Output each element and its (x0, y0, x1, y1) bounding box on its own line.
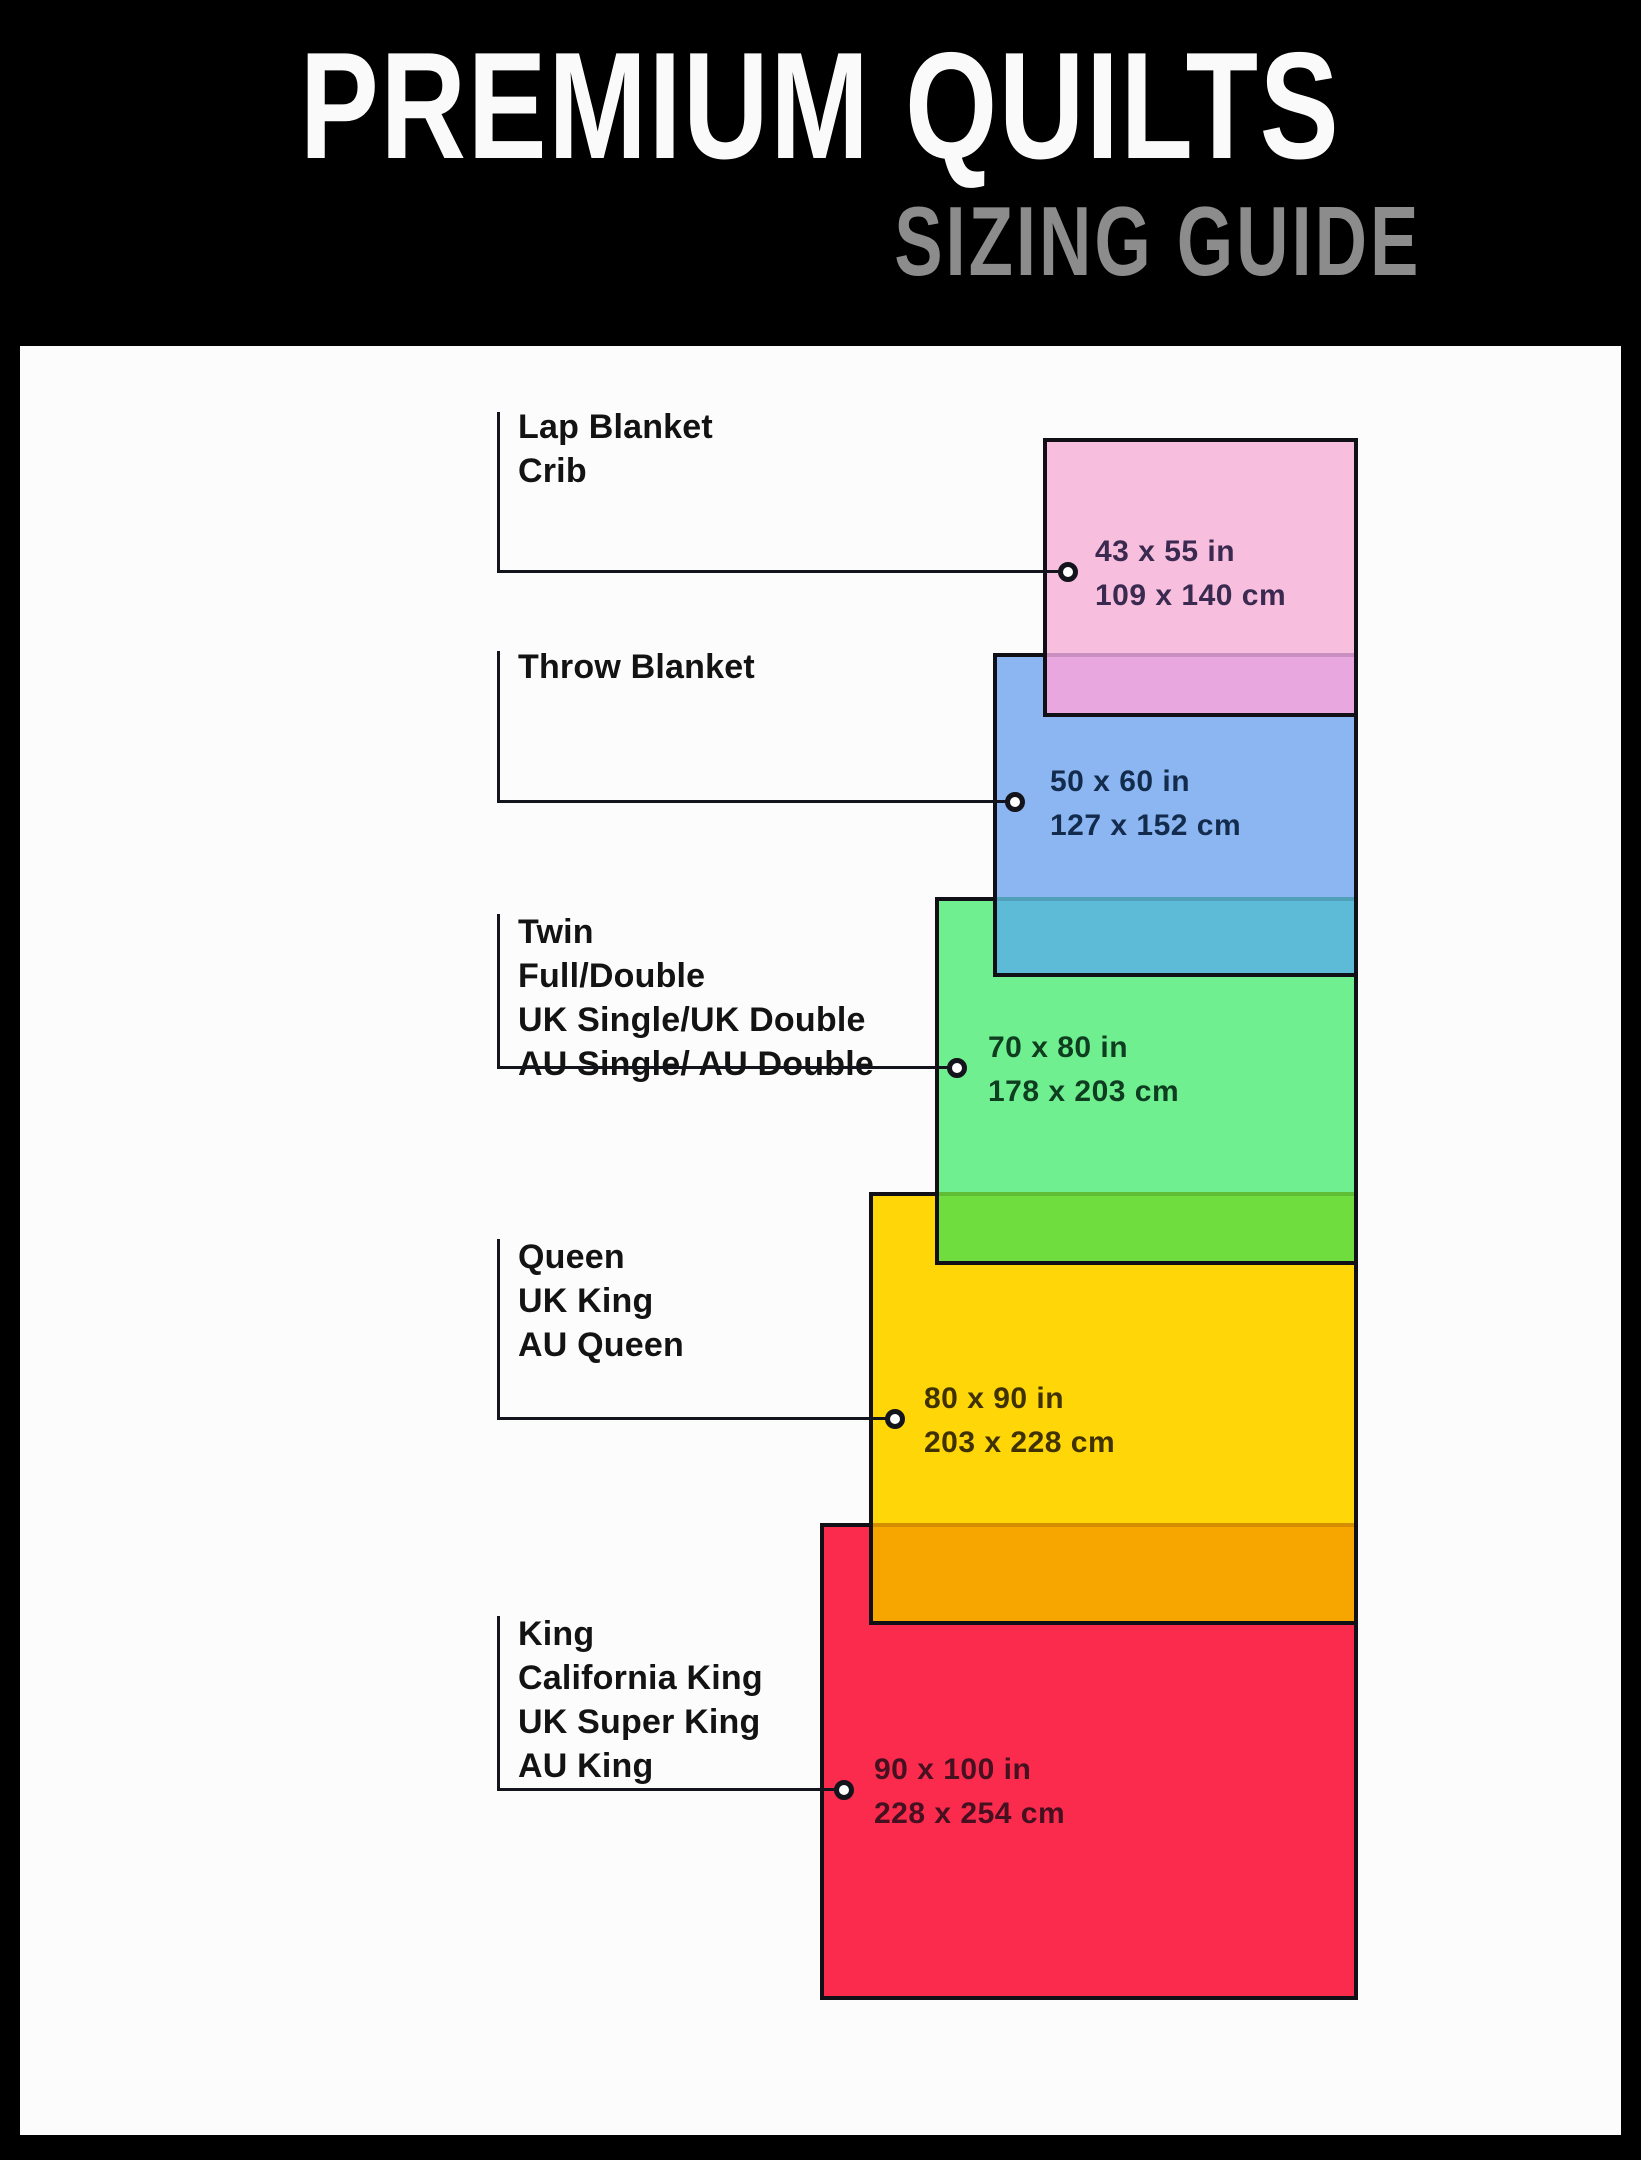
size-dimensions-twin-full-double: 70 x 80 in 178 x 203 cm (988, 1026, 1179, 1114)
dimension-cm: 228 x 254 cm (874, 1792, 1065, 1836)
dimension-inches: 70 x 80 in (988, 1026, 1179, 1070)
size-label-lap-blanket-crib: Lap Blanket Crib (518, 405, 713, 493)
infographic-canvas: PREMIUM QUILTS SIZING GUIDE Lap Blanket … (0, 0, 1641, 2160)
subtitle-wrap: SIZING GUIDE (709, 192, 1421, 290)
leader-line-horizontal (497, 570, 1068, 573)
header: PREMIUM QUILTS (0, 30, 1641, 182)
size-label-queen: Queen UK King AU Queen (518, 1235, 684, 1367)
dimension-inches: 90 x 100 in (874, 1748, 1065, 1792)
leader-tick-vertical (497, 651, 500, 802)
leader-dot (885, 1409, 905, 1429)
leader-dot (1005, 792, 1025, 812)
page-subtitle: SIZING GUIDE (894, 192, 1421, 290)
leader-dot (947, 1058, 967, 1078)
dimension-cm: 127 x 152 cm (1050, 804, 1241, 848)
leader-tick-vertical (497, 412, 500, 572)
size-dimensions-king: 90 x 100 in 228 x 254 cm (874, 1748, 1065, 1836)
size-dimensions-throw-blanket: 50 x 60 in 127 x 152 cm (1050, 760, 1241, 848)
leader-tick-vertical (497, 1616, 500, 1790)
size-label-twin-full-double: Twin Full/Double UK Single/UK Double AU … (518, 910, 874, 1086)
overlap-queen-king (873, 1523, 1354, 1621)
leader-line-horizontal (497, 800, 1015, 803)
size-dimensions-queen: 80 x 90 in 203 x 228 cm (924, 1377, 1115, 1465)
dimension-cm: 203 x 228 cm (924, 1421, 1115, 1465)
leader-line-horizontal (497, 1788, 844, 1791)
leader-line-horizontal (497, 1417, 895, 1420)
leader-line-horizontal (497, 1066, 957, 1069)
overlap-throw-twin (997, 897, 1354, 973)
size-label-king: King California King UK Super King AU Ki… (518, 1612, 763, 1788)
leader-dot (1058, 562, 1078, 582)
dimension-inches: 43 x 55 in (1095, 530, 1286, 574)
leader-dot (834, 1780, 854, 1800)
page-title: PREMIUM QUILTS (300, 30, 1341, 182)
size-dimensions-lap-blanket-crib: 43 x 55 in 109 x 140 cm (1095, 530, 1286, 618)
dimension-cm: 178 x 203 cm (988, 1070, 1179, 1114)
leader-tick-vertical (497, 914, 500, 1068)
leader-tick-vertical (497, 1239, 500, 1419)
overlap-twin-queen (939, 1192, 1354, 1261)
dimension-inches: 50 x 60 in (1050, 760, 1241, 804)
overlap-lap-throw (1047, 653, 1354, 713)
dimension-cm: 109 x 140 cm (1095, 574, 1286, 618)
size-label-throw-blanket: Throw Blanket (518, 645, 755, 689)
dimension-inches: 80 x 90 in (924, 1377, 1115, 1421)
